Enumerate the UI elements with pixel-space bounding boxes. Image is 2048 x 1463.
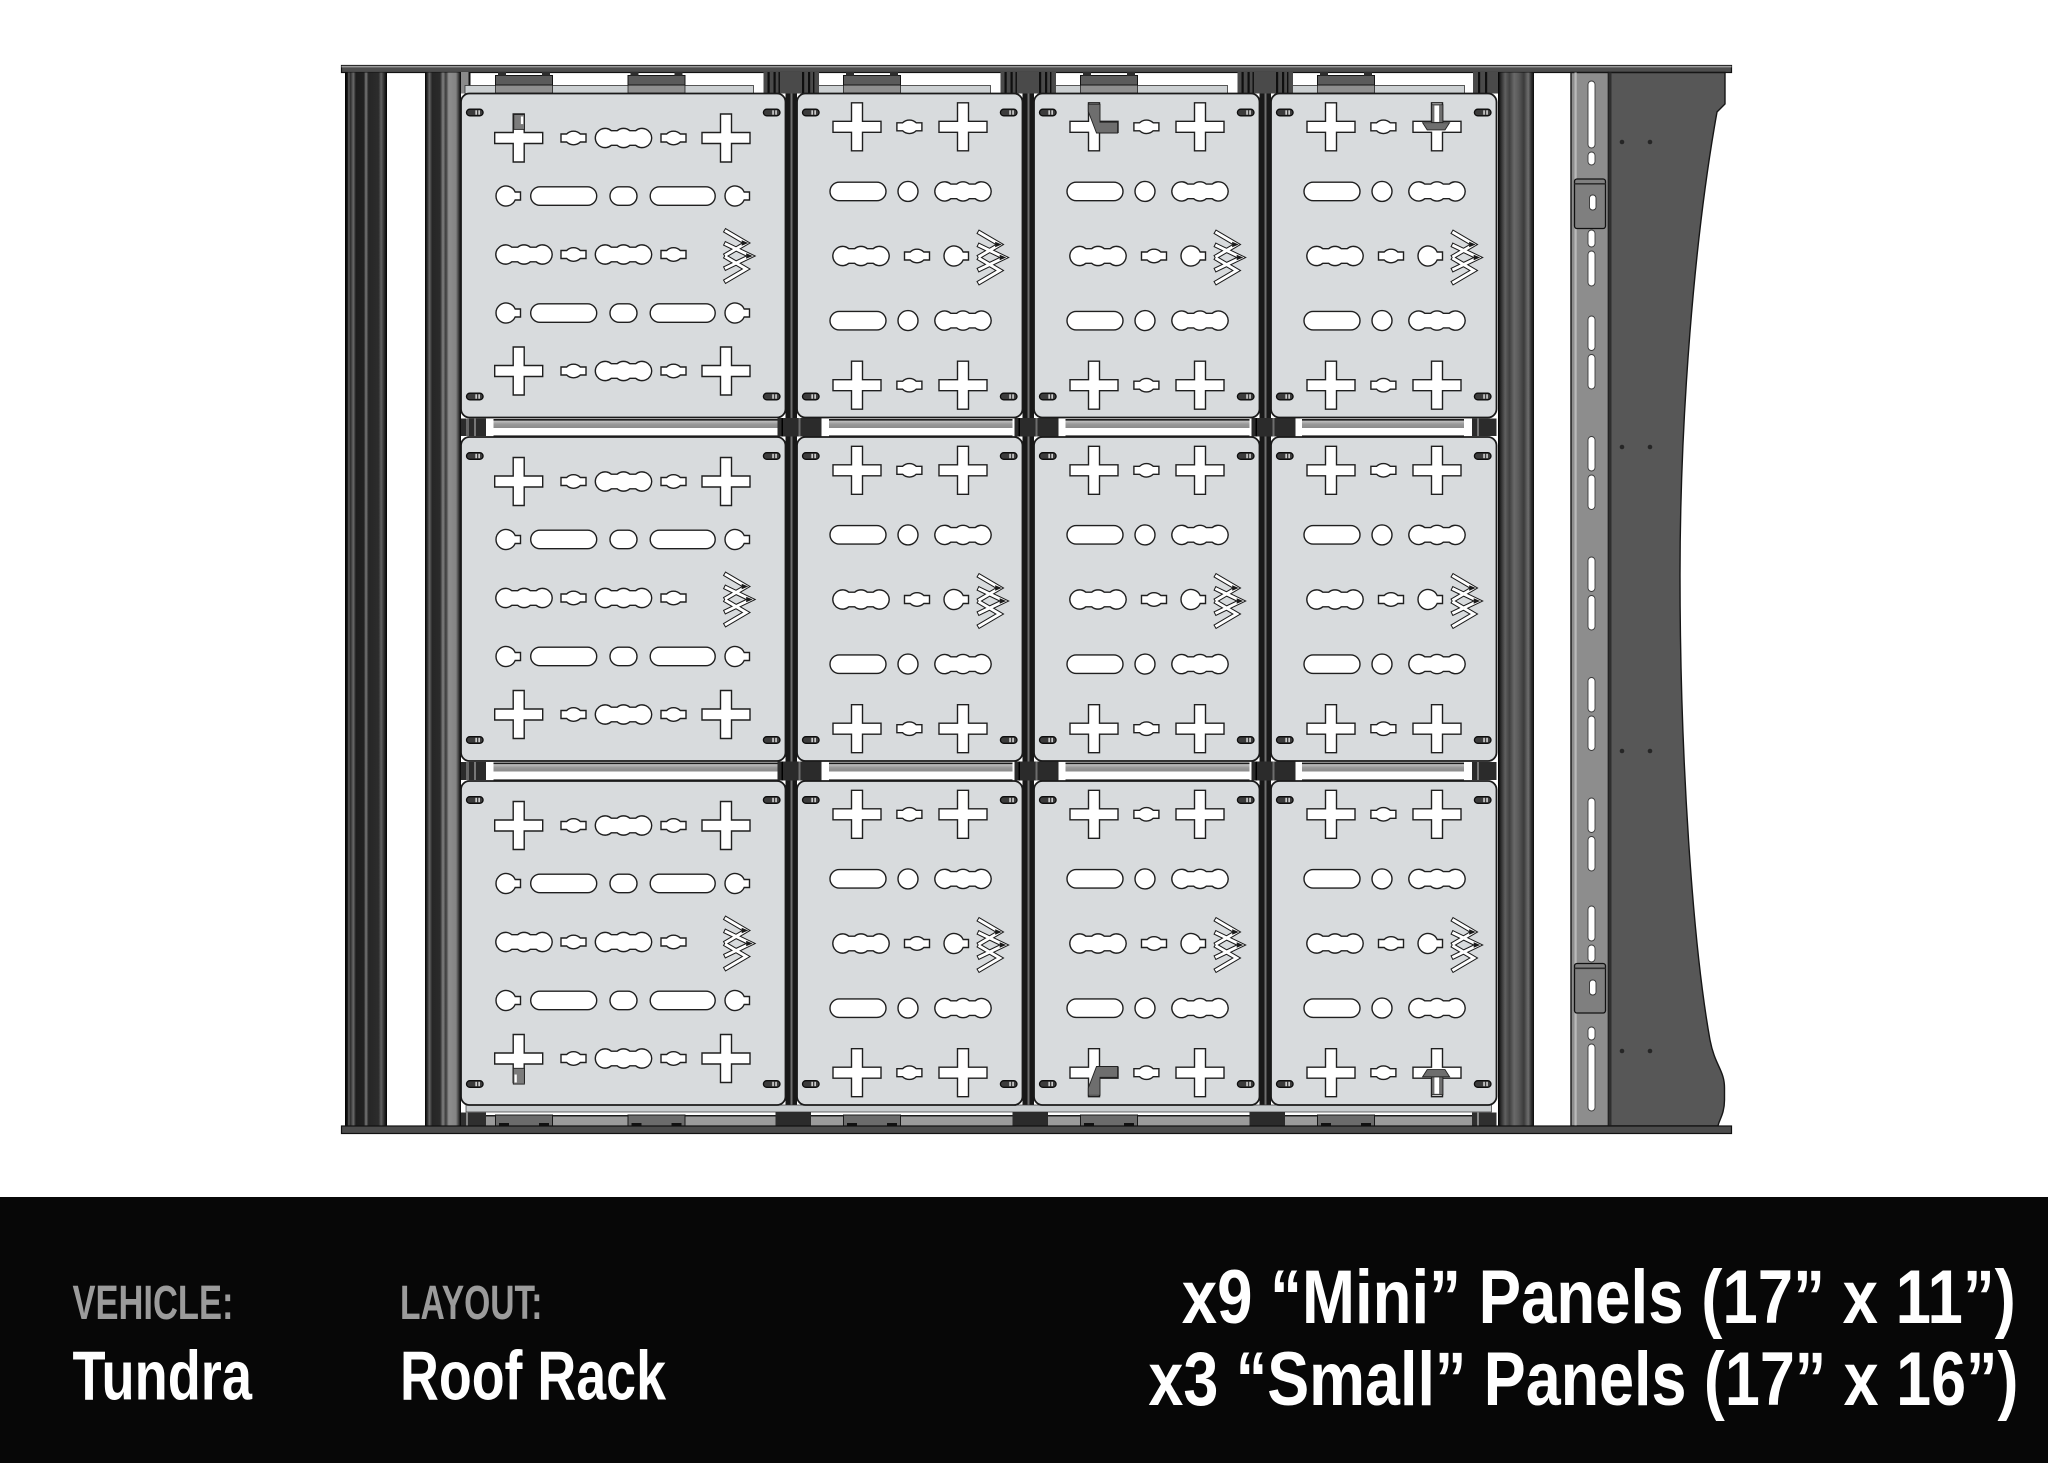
svg-text:Roof Rack: Roof Rack — [400, 1337, 666, 1415]
svg-text:LAYOUT:: LAYOUT: — [400, 1277, 543, 1330]
svg-text:Tundra: Tundra — [73, 1337, 253, 1415]
svg-text:x3 “Small” Panels (17” x 16”): x3 “Small” Panels (17” x 16”) — [1148, 1337, 2018, 1422]
svg-text:VEHICLE:: VEHICLE: — [73, 1277, 234, 1330]
svg-text:x9 “Mini” Panels (17” x 11”): x9 “Mini” Panels (17” x 11”) — [1182, 1255, 2016, 1340]
